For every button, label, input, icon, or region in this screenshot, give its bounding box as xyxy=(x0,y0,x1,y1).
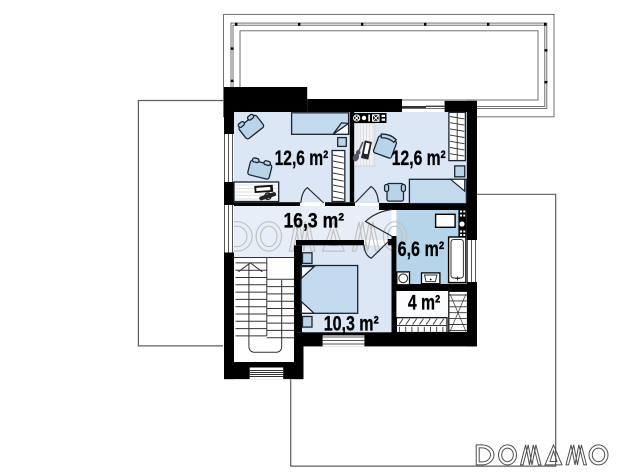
svg-text:12,6 m²: 12,6 m² xyxy=(392,146,446,170)
svg-text:4 m²: 4 m² xyxy=(408,290,440,314)
svg-text:12,6 m²: 12,6 m² xyxy=(275,146,329,170)
svg-text:16,3 m²: 16,3 m² xyxy=(284,209,345,233)
svg-text:10,3 m²: 10,3 m² xyxy=(324,311,379,335)
svg-text:6,6 m²: 6,6 m² xyxy=(398,237,445,261)
